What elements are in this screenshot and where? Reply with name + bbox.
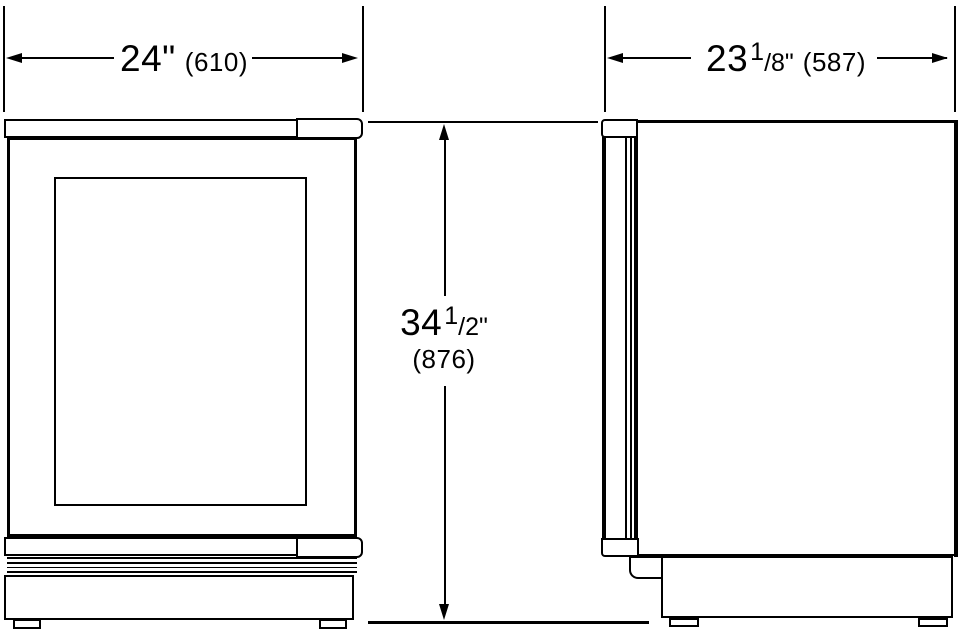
appliance-dimension-diagram: 24" (610) 23 1 /8" (587) 34 1 /2" (876) (0, 0, 960, 632)
depth-extension-line-right (954, 6, 956, 112)
front-top-trim (4, 119, 298, 138)
side-door-inner-line (625, 137, 627, 538)
front-top-hinge-cover (296, 118, 363, 139)
height-dimension-line-bottom (444, 386, 446, 608)
side-door-bottom-cap (601, 538, 639, 557)
height-metric-text: (876) (381, 344, 507, 375)
front-vent-line (7, 562, 357, 564)
front-vent-line (7, 571, 357, 573)
depth-dimension-label: 23 1 /8" (587) (688, 40, 884, 82)
width-arrowhead-right-icon (342, 53, 358, 63)
height-arrowhead-down-icon (439, 604, 449, 620)
front-vent-line (7, 557, 357, 559)
side-foot-back (918, 618, 948, 628)
side-door-top-cap (601, 119, 638, 138)
front-glass-window (54, 177, 307, 506)
width-dimension-line-left (18, 57, 114, 59)
side-bottom-step (629, 556, 664, 579)
front-foot-right (319, 619, 347, 629)
depth-fraction-text: /8" (764, 45, 794, 82)
height-dimension-line-top (444, 136, 446, 296)
depth-arrowhead-right-icon (932, 53, 948, 63)
depth-metric-text: (587) (803, 44, 866, 81)
side-cabinet-front-line (634, 119, 638, 556)
depth-extension-line-left (604, 6, 606, 112)
floor-line (368, 621, 649, 624)
front-vent-line (7, 567, 357, 569)
height-dimension-label: 34 1 /2" (381, 304, 507, 346)
side-door-inner-line (630, 137, 632, 538)
side-door-front-face-line (602, 137, 606, 538)
depth-dimension-line-left (619, 57, 691, 59)
height-extension-line-top (368, 121, 598, 123)
front-foot-left (13, 619, 41, 629)
height-numerator-text: 1 (444, 298, 458, 335)
side-base-plinth (661, 556, 953, 618)
side-foot-front (669, 618, 699, 628)
front-bottom-trim (4, 537, 298, 556)
width-extension-line-right (362, 6, 364, 112)
depth-numerator-text: 1 (750, 34, 764, 71)
front-bottom-hinge-cover (296, 537, 363, 559)
height-fraction-text: /2" (458, 309, 488, 346)
width-metric-text: (610) (185, 44, 248, 81)
height-whole-text: 34 (400, 304, 442, 341)
side-cabinet-top-line (634, 120, 956, 124)
front-base-plinth (4, 575, 354, 620)
width-dimension-line-right (252, 57, 346, 59)
width-dimension-label: 24" (610) (108, 40, 260, 81)
depth-whole-text: 23 (706, 40, 748, 77)
side-cabinet-back-line (954, 120, 958, 557)
width-imperial-text: 24" (120, 40, 176, 77)
width-extension-line-left (3, 6, 5, 112)
